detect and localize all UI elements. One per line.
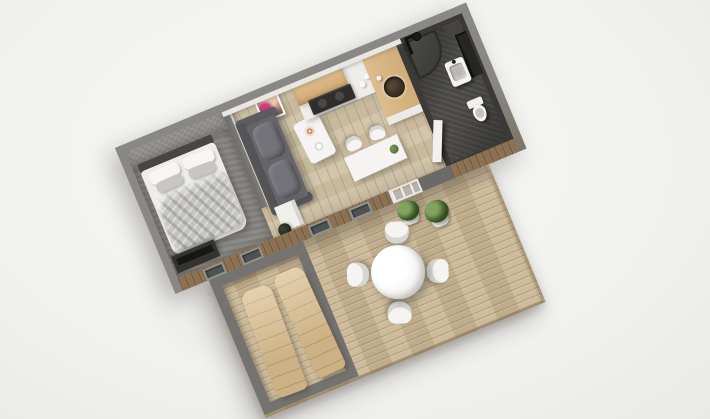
plate <box>313 140 325 152</box>
bathroom-door <box>432 120 442 162</box>
terrace-chair <box>346 262 369 287</box>
terrace-chair <box>426 258 449 283</box>
scene <box>0 0 710 419</box>
table-plant <box>388 143 400 155</box>
plate <box>303 125 316 138</box>
toilet-seat <box>474 106 487 120</box>
plan-shadow-wrap <box>0 0 710 419</box>
terrace-chair <box>387 301 412 324</box>
washbasin-bowl <box>448 62 467 82</box>
